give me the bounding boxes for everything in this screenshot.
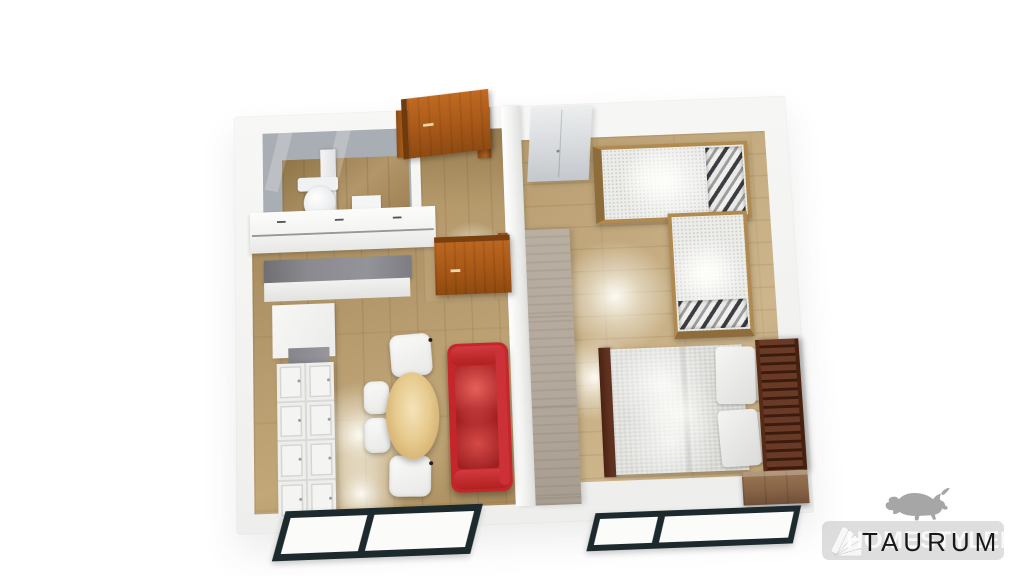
striped-pillows (705, 146, 746, 214)
cabinet-door (306, 362, 334, 400)
door-handle (451, 269, 461, 272)
cabinet-door (277, 363, 305, 401)
cabinet-door (307, 401, 335, 439)
bull-icon (876, 485, 956, 525)
watermark: HOMESTYLER TAURUM (822, 521, 1004, 560)
kitchen-wall-counter (250, 206, 436, 254)
red-sofa (447, 342, 513, 493)
white-wardrobe (527, 105, 592, 182)
bed-pillow-white (715, 346, 756, 404)
daybed-vertical (667, 211, 754, 340)
interior-door (434, 235, 512, 296)
cabinet-door (277, 402, 305, 440)
entry-door (401, 89, 491, 159)
window-mullion (652, 516, 665, 542)
wood-dresser (742, 470, 810, 506)
bed-pillow-white (717, 409, 762, 468)
sofa-seat (455, 365, 500, 469)
cabinet-handle (393, 216, 402, 218)
bedroom-window (586, 505, 801, 551)
window-mullion (358, 515, 375, 551)
taurum-brand-text: TAURUM (862, 527, 1001, 558)
door-handle (423, 123, 434, 127)
cabinet-door (278, 441, 306, 480)
striped-pillows (678, 299, 748, 330)
cabinet-handle (277, 221, 286, 223)
cabinet-door (307, 440, 335, 479)
double-bed (598, 339, 799, 480)
dining-chair-bottom (389, 455, 431, 496)
kitchen-base-cabinets (277, 362, 337, 520)
dining-chair-top (389, 332, 433, 377)
apartment-floorplan (220, 71, 815, 535)
bed-headboard-slats (755, 338, 807, 473)
living-room-window (272, 504, 483, 562)
floorplan-canvas: HOMESTYLER TAURUM (0, 0, 1024, 576)
cabinet-handle (335, 219, 344, 221)
plan-3d-tilt (234, 96, 815, 535)
